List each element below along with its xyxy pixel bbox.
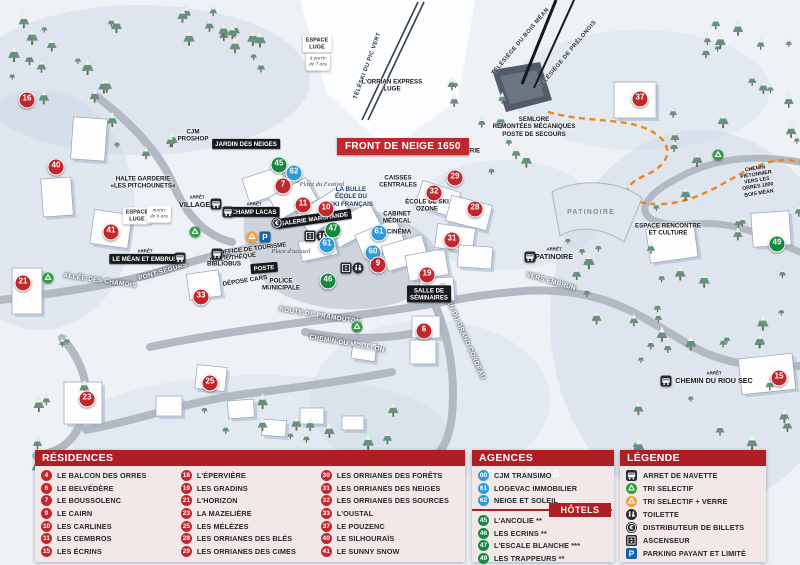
marker-number: 6	[41, 483, 52, 494]
list-item: 37LE POUZENC	[321, 520, 461, 533]
item-label: LE SUNNY SNOW	[337, 547, 400, 556]
legend-item: TRI SELECTIF + VERRE	[626, 495, 762, 508]
item-label: LE BOUSSOLENC	[57, 496, 121, 505]
item-label: LES GRADINS	[197, 484, 248, 493]
recycle-icon	[713, 150, 724, 161]
list-item: 41LE SUNNY SNOW	[321, 545, 461, 558]
item-label: LES ORRIANES DES CIMES	[197, 547, 296, 556]
marker-number: 4	[41, 470, 52, 481]
item-label: LES MÉLÈZES	[197, 522, 249, 531]
item-label: L'ANCOLIE **	[494, 516, 542, 525]
item-label: CJM TRANSIMO	[494, 471, 552, 480]
legend-label: PARKING PAYANT ET LIMITÉ	[643, 549, 746, 558]
map-label: CAISSES CENTRALES	[379, 175, 417, 190]
marker-number: 29	[181, 546, 192, 557]
map-marker-46: 46	[320, 273, 337, 290]
legend-item: ASCENSEUR	[626, 534, 762, 547]
map-label: Place du Festival	[300, 181, 345, 189]
residences-column: 4LE BALCON DES ORRES6LE BELVÉDÈRE7LE BOU…	[41, 469, 181, 558]
map-marker-61: 61	[319, 237, 336, 254]
map-label: PATINOIRE	[567, 209, 615, 217]
marker-number: 7	[41, 495, 52, 506]
map-marker-61: 61	[371, 225, 388, 242]
map-label: ROUTE DE PRAMOUTON	[278, 306, 361, 326]
map-label: CHEMIN DU MOUFLON	[309, 334, 385, 355]
list-item: 6LE BELVÉDÈRE	[41, 482, 181, 495]
marker-number: 61	[478, 483, 489, 494]
bus-icon	[175, 253, 186, 264]
map-label: TÉLÉSIÈGE DE PRÉLONGIS	[538, 20, 599, 91]
map-label: SALLE DE SÉMINAIRES	[407, 285, 451, 302]
recycle-icon	[352, 322, 363, 333]
list-item: 11LES CEMBROS	[41, 532, 181, 545]
map-marker-49: 49	[769, 236, 786, 253]
euro-icon	[272, 218, 283, 229]
item-label: LES ECRINS **	[494, 529, 547, 538]
residences-panel: RÉSIDENCES 4LE BALCON DES ORRES6LE BELVÉ…	[35, 450, 465, 562]
bus-icon	[525, 252, 536, 263]
legend-label: TRI SELECTIF	[643, 484, 693, 493]
marker-number: 60	[478, 470, 489, 481]
arret-label: ARRÊT	[706, 370, 721, 375]
legend-item: ARRET DE NAVETTE	[626, 469, 762, 482]
map-label: SEMLORE REMONTÉES MÉCANIQUES POSTE DE SE…	[493, 116, 576, 138]
map-label: L'ORRIAN EXPRESS LUGE	[362, 79, 423, 94]
map-marker-23: 23	[79, 391, 96, 408]
item-label: LES ORRIANES DES FORÊTS	[337, 471, 443, 480]
map-label: ESPACE LUGE	[303, 35, 332, 52]
list-item: 4LE BALCON DES ORRES	[41, 469, 181, 482]
item-label: L'ESCALE BLANCHE ***	[494, 541, 580, 550]
list-item: 40LE SILHOURAÏS	[321, 532, 461, 545]
item-label: L'OUSTAL	[337, 509, 373, 518]
item-label: LE CAIRN	[57, 509, 92, 518]
marker-number: 15	[41, 546, 52, 557]
list-item: 29LES ORRIANES DES CIMES	[181, 545, 321, 558]
item-label: LE POUZENC	[337, 522, 385, 531]
agencies-header: AGENCES IMMOBILIÈRES	[472, 450, 614, 466]
wc-icon	[353, 263, 364, 274]
list-item: 31LES ORRIANES DES NEIGES	[321, 482, 461, 495]
bus-icon	[626, 470, 637, 481]
list-item: 49LES TRAPPEURS **	[478, 552, 610, 565]
map-label: JARDIN DES NEIGES	[212, 139, 280, 149]
map-marker-7: 7	[275, 178, 292, 195]
legend-label: DISTRIBUTEUR DE BILLETS	[643, 523, 744, 532]
legend-item: TRI SELECTIF	[626, 482, 762, 495]
list-item: 7LE BOUSSOLENC	[41, 494, 181, 507]
map-marker-37: 37	[632, 91, 649, 108]
list-item: 21L'HORIZON	[181, 494, 321, 507]
map-label: ALLÉE DES CHAMOIS	[63, 272, 137, 290]
marker-number: 47	[478, 540, 489, 551]
legend-item: TOILETTE	[626, 508, 762, 521]
residences-column: 16L'ÉPERVIÈRE19LES GRADINS21L'HORIZON23L…	[181, 469, 321, 558]
bus-icon	[211, 199, 222, 210]
list-item: 15LES ÉCRINS	[41, 545, 181, 558]
residences-header: RÉSIDENCES	[35, 450, 465, 466]
item-label: LES ORRIANES DES SOURCES	[337, 496, 449, 505]
front-de-neige-badge: FRONT DE NEIGE 1650	[337, 138, 469, 155]
map-marker-25: 25	[202, 375, 219, 392]
bus-icon	[223, 207, 234, 218]
bus-icon	[661, 376, 672, 387]
map-label: VERS EMBRUN	[525, 271, 576, 292]
map-label: ÉCOLE DE SKI OZONE	[405, 199, 449, 214]
marker-number: 21	[181, 495, 192, 506]
euro-icon	[626, 522, 637, 533]
item-label: LES CEMBROS	[57, 534, 112, 543]
map-label: BIBLIOBUS	[207, 260, 241, 267]
list-item: 60CJM TRANSIMO	[478, 469, 610, 482]
map-label: POSTE	[250, 262, 277, 274]
item-label: LE BALCON DES ORRES	[57, 471, 146, 480]
marker-number: 23	[181, 508, 192, 519]
legend-label: TRI SELECTIF + VERRE	[643, 497, 728, 506]
marker-number: 25	[181, 521, 192, 532]
map-marker-19: 19	[419, 267, 436, 284]
item-label: LE BELVÉDÈRE	[57, 484, 114, 493]
list-item: 9LE CAIRN	[41, 507, 181, 520]
map-label: DÉPOSE CARS	[222, 274, 268, 288]
map-label: PONT SEGURS	[138, 261, 189, 282]
resort-map: € P	[0, 0, 800, 565]
arret-label: ARRÊT	[546, 246, 561, 251]
legend-panel: LÉGENDE ARRET DE NAVETTETRI SELECTIFTRI …	[620, 450, 766, 562]
item-label: LES ÉCRINS	[57, 547, 102, 556]
map-marker-28: 28	[467, 201, 484, 218]
map-label: CABINET MÉDICAL	[383, 211, 411, 226]
list-item: 32LES ORRIANES DES SOURCES	[321, 494, 461, 507]
lift-icon	[626, 535, 637, 546]
map-label: LE MÉAN ET EMBRUN	[109, 254, 180, 264]
map-marker-9: 9	[370, 257, 387, 274]
residences-column: 30LES ORRIANES DES FORÊTS31LES ORRIANES …	[321, 469, 461, 558]
item-label: L'ÉPERVIÈRE	[197, 471, 246, 480]
map-marker-16: 16	[19, 92, 36, 109]
map-marker-40: 40	[48, 159, 65, 176]
list-item: 10LES CARLINES	[41, 520, 181, 533]
marker-number: 32	[321, 495, 332, 506]
marker-number: 45	[478, 515, 489, 526]
map-label: LA BULLE ÉCOLE DU SKI FRANÇAIS	[329, 186, 373, 208]
marker-number: 10	[41, 521, 52, 532]
legend-item: DISTRIBUTEUR DE BILLETS	[626, 521, 762, 534]
map-marker-11: 11	[295, 197, 312, 214]
list-item: 16L'ÉPERVIÈRE	[181, 469, 321, 482]
map-label: CJM PROSHOP	[178, 129, 209, 144]
item-label: LA MAZELIÈRE	[197, 509, 252, 518]
marker-number: 46	[478, 528, 489, 539]
map-label: HALTE GARDERIE «LES PITCHOUNETS»	[111, 176, 176, 191]
lift-icon	[305, 231, 316, 242]
map-marker-15: 15	[771, 370, 788, 387]
arret-label: ARRÊT	[246, 201, 261, 206]
recycle-icon	[190, 227, 201, 238]
wc-icon	[626, 509, 637, 520]
map-marker-31: 31	[444, 232, 461, 249]
item-label: LE SILHOURAÏS	[337, 534, 395, 543]
map-label: CHAMP LACAS	[229, 207, 280, 217]
map-marker-10: 10	[318, 201, 335, 218]
arret-label: ARRÊT	[189, 194, 204, 199]
bus-icon	[212, 249, 223, 260]
list-item: 19LES GRADINS	[181, 482, 321, 495]
list-item: 25LES MÉLÈZES	[181, 520, 321, 533]
marker-number: 33	[321, 508, 332, 519]
map-label: ESPACE RENCONTRE ET CULTURE	[635, 223, 701, 238]
marker-number: 40	[321, 533, 332, 544]
legend-header: LÉGENDE	[620, 450, 766, 466]
map-label: POLICE MUNICIPALE	[262, 278, 300, 293]
map-marker-21: 21	[15, 275, 32, 292]
arret-label: ARRÊT	[137, 248, 152, 253]
legend-label: TOILETTE	[643, 510, 679, 519]
recycle2-icon	[247, 232, 258, 243]
item-label: LES TRAPPEURS **	[494, 554, 565, 563]
marker-number: 19	[181, 483, 192, 494]
list-item: 30LES ORRIANES DES FORÊTS	[321, 469, 461, 482]
list-item: 28LES ORRIANES DES BLÉS	[181, 532, 321, 545]
map-label: CHEMIN DU RIOU SEC	[675, 377, 752, 385]
map-marker-29: 29	[447, 170, 464, 187]
marker-number: 16	[181, 470, 192, 481]
list-item: 33L'OUSTAL	[321, 507, 461, 520]
agencies-panel: AGENCES IMMOBILIÈRES 60CJM TRANSIMO61LOG…	[472, 450, 614, 562]
map-marker-33: 33	[193, 289, 210, 306]
marker-number: 9	[41, 508, 52, 519]
marker-number: 37	[321, 521, 332, 532]
item-label: LES ORRIANES DES NEIGES	[337, 484, 441, 493]
marker-number: 31	[321, 483, 332, 494]
list-item: 47L'ESCALE BLANCHE ***	[478, 539, 610, 552]
parking-icon	[626, 548, 637, 559]
map-marker-6: 6	[416, 323, 433, 340]
lift-icon	[341, 263, 352, 274]
marker-number: 62	[478, 495, 489, 506]
item-label: LES ORRIANES DES BLÉS	[197, 534, 292, 543]
list-item: 45L'ANCOLIE **	[478, 514, 610, 527]
marker-number: 49	[478, 553, 489, 564]
recycle-icon	[43, 273, 54, 284]
map-label: Place d'accueil	[271, 248, 310, 256]
map-label: moins de 6 ans	[147, 206, 171, 223]
item-label: L'HORIZON	[197, 496, 238, 505]
marker-number: 11	[41, 533, 52, 544]
map-label: PATINOIRE	[535, 253, 573, 261]
recycle2-icon	[626, 496, 637, 507]
list-item: 61LOGEVAC IMMOBILIER	[478, 482, 610, 495]
list-item: 23LA MAZELIÈRE	[181, 507, 321, 520]
legend-item: PARKING PAYANT ET LIMITÉ	[626, 547, 762, 560]
map-marker-41: 41	[103, 224, 120, 241]
map-label: à partir de 7 ans	[306, 54, 330, 71]
marker-number: 30	[321, 470, 332, 481]
map-marker-32: 32	[426, 185, 443, 202]
recycle-icon	[626, 483, 637, 494]
list-item: 46LES ECRINS **	[478, 527, 610, 540]
marker-number: 28	[181, 533, 192, 544]
legend-label: ASCENSEUR	[643, 536, 690, 545]
item-label: LES CARLINES	[57, 522, 112, 531]
map-label: CINÉMA	[387, 228, 411, 235]
legend-label: ARRET DE NAVETTE	[643, 471, 717, 480]
map-label: TÉLÉSIÈGE DU BOIS MÉAN	[491, 7, 551, 77]
parking-icon	[260, 232, 271, 243]
marker-number: 41	[321, 546, 332, 557]
item-label: LOGEVAC IMMOBILIER	[494, 484, 577, 493]
map-label: CHEMIN PIÉTONNIER VERS LES ORRES 1800 BO…	[733, 163, 780, 200]
